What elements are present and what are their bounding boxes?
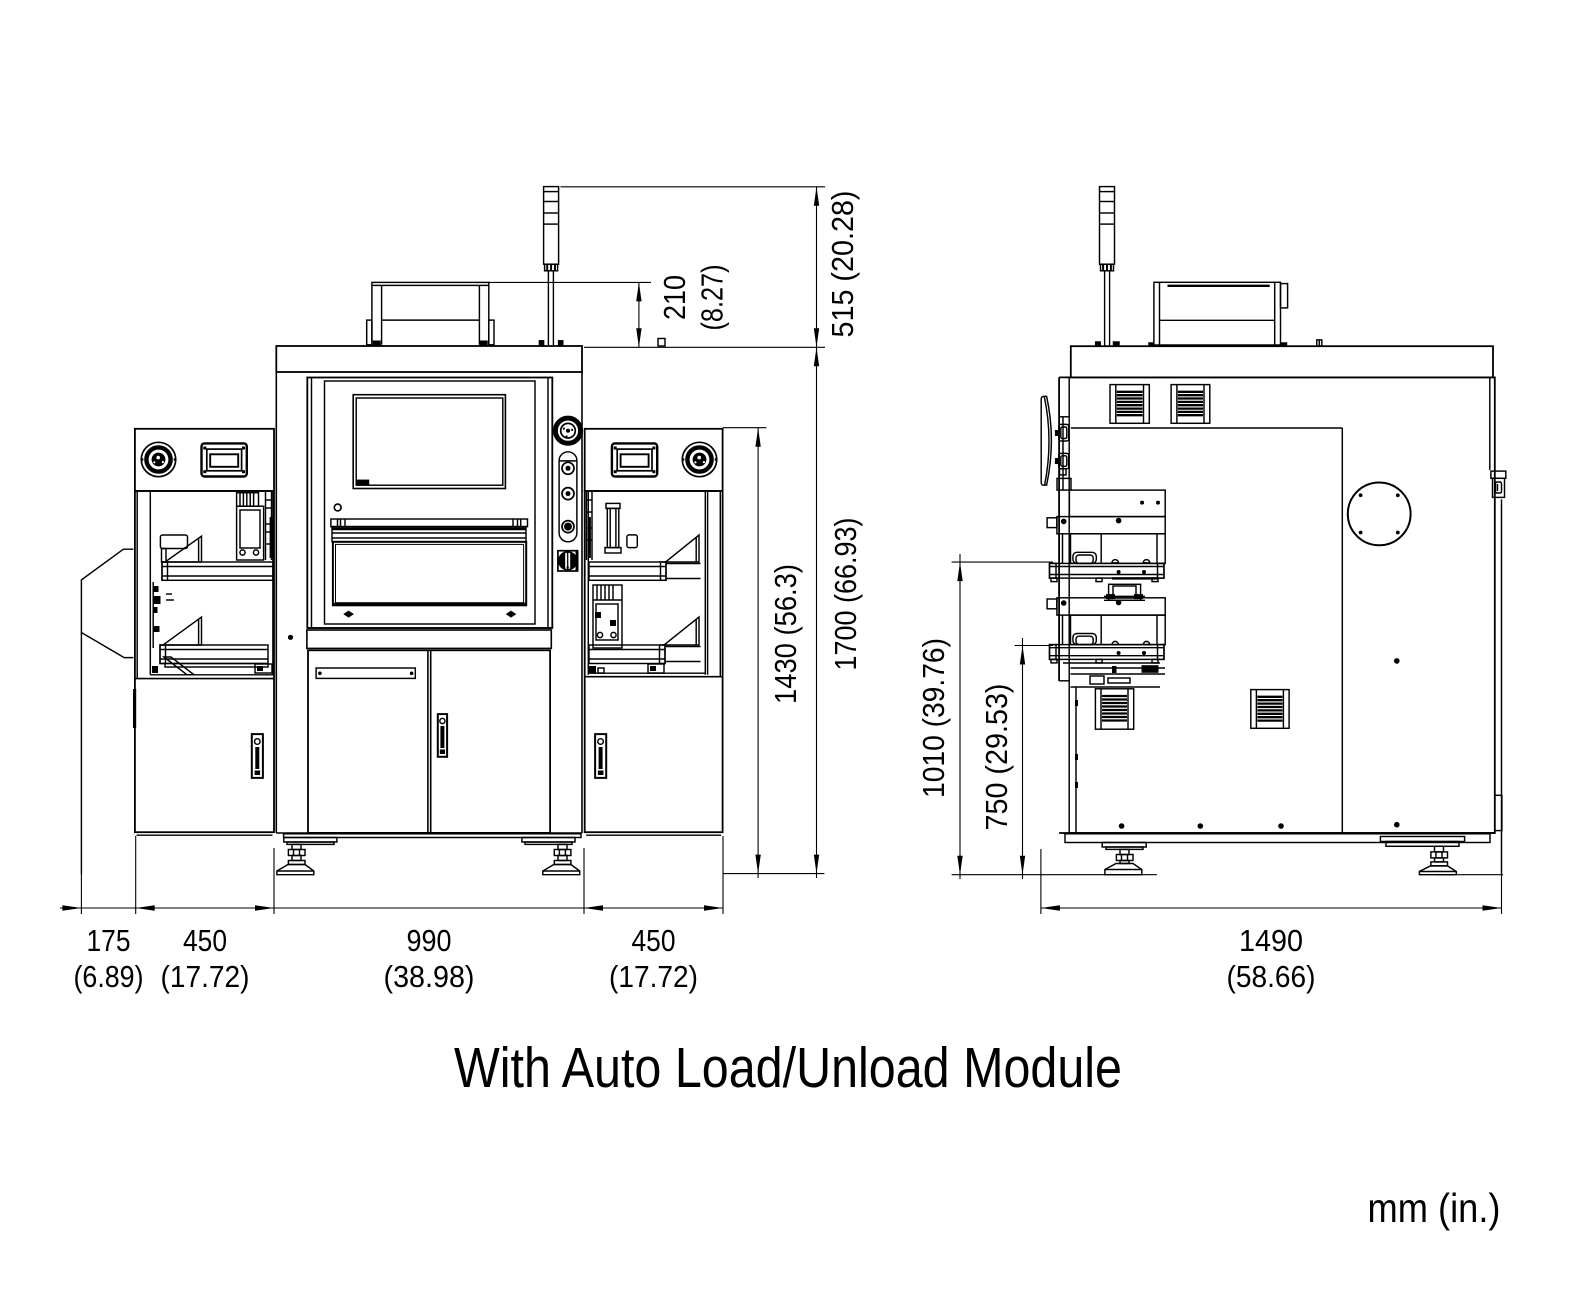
svg-text:990: 990 [407,923,452,958]
svg-text:1010 (39.76): 1010 (39.76) [916,638,951,798]
svg-text:175: 175 [87,923,131,958]
svg-text:515 (20.28): 515 (20.28) [825,191,860,338]
svg-text:(38.98): (38.98) [384,959,475,994]
svg-text:(17.72): (17.72) [609,959,698,994]
svg-text:With Auto Load/Unload Module: With Auto Load/Unload Module [454,1036,1122,1100]
svg-text:mm (in.): mm (in.) [1368,1185,1501,1231]
svg-text:450: 450 [183,923,227,958]
svg-text:(8.27): (8.27) [695,265,730,331]
svg-text:(6.89): (6.89) [74,959,144,994]
svg-text:1490: 1490 [1239,923,1303,958]
svg-text:210: 210 [657,275,692,320]
svg-text:(17.72): (17.72) [161,959,250,994]
svg-text:450: 450 [632,923,676,958]
svg-text:1700 (66.93): 1700 (66.93) [828,518,863,671]
svg-text:750 (29.53): 750 (29.53) [979,684,1014,831]
svg-text:1430 (56.3): 1430 (56.3) [768,564,803,704]
svg-text:(58.66): (58.66) [1227,959,1316,994]
